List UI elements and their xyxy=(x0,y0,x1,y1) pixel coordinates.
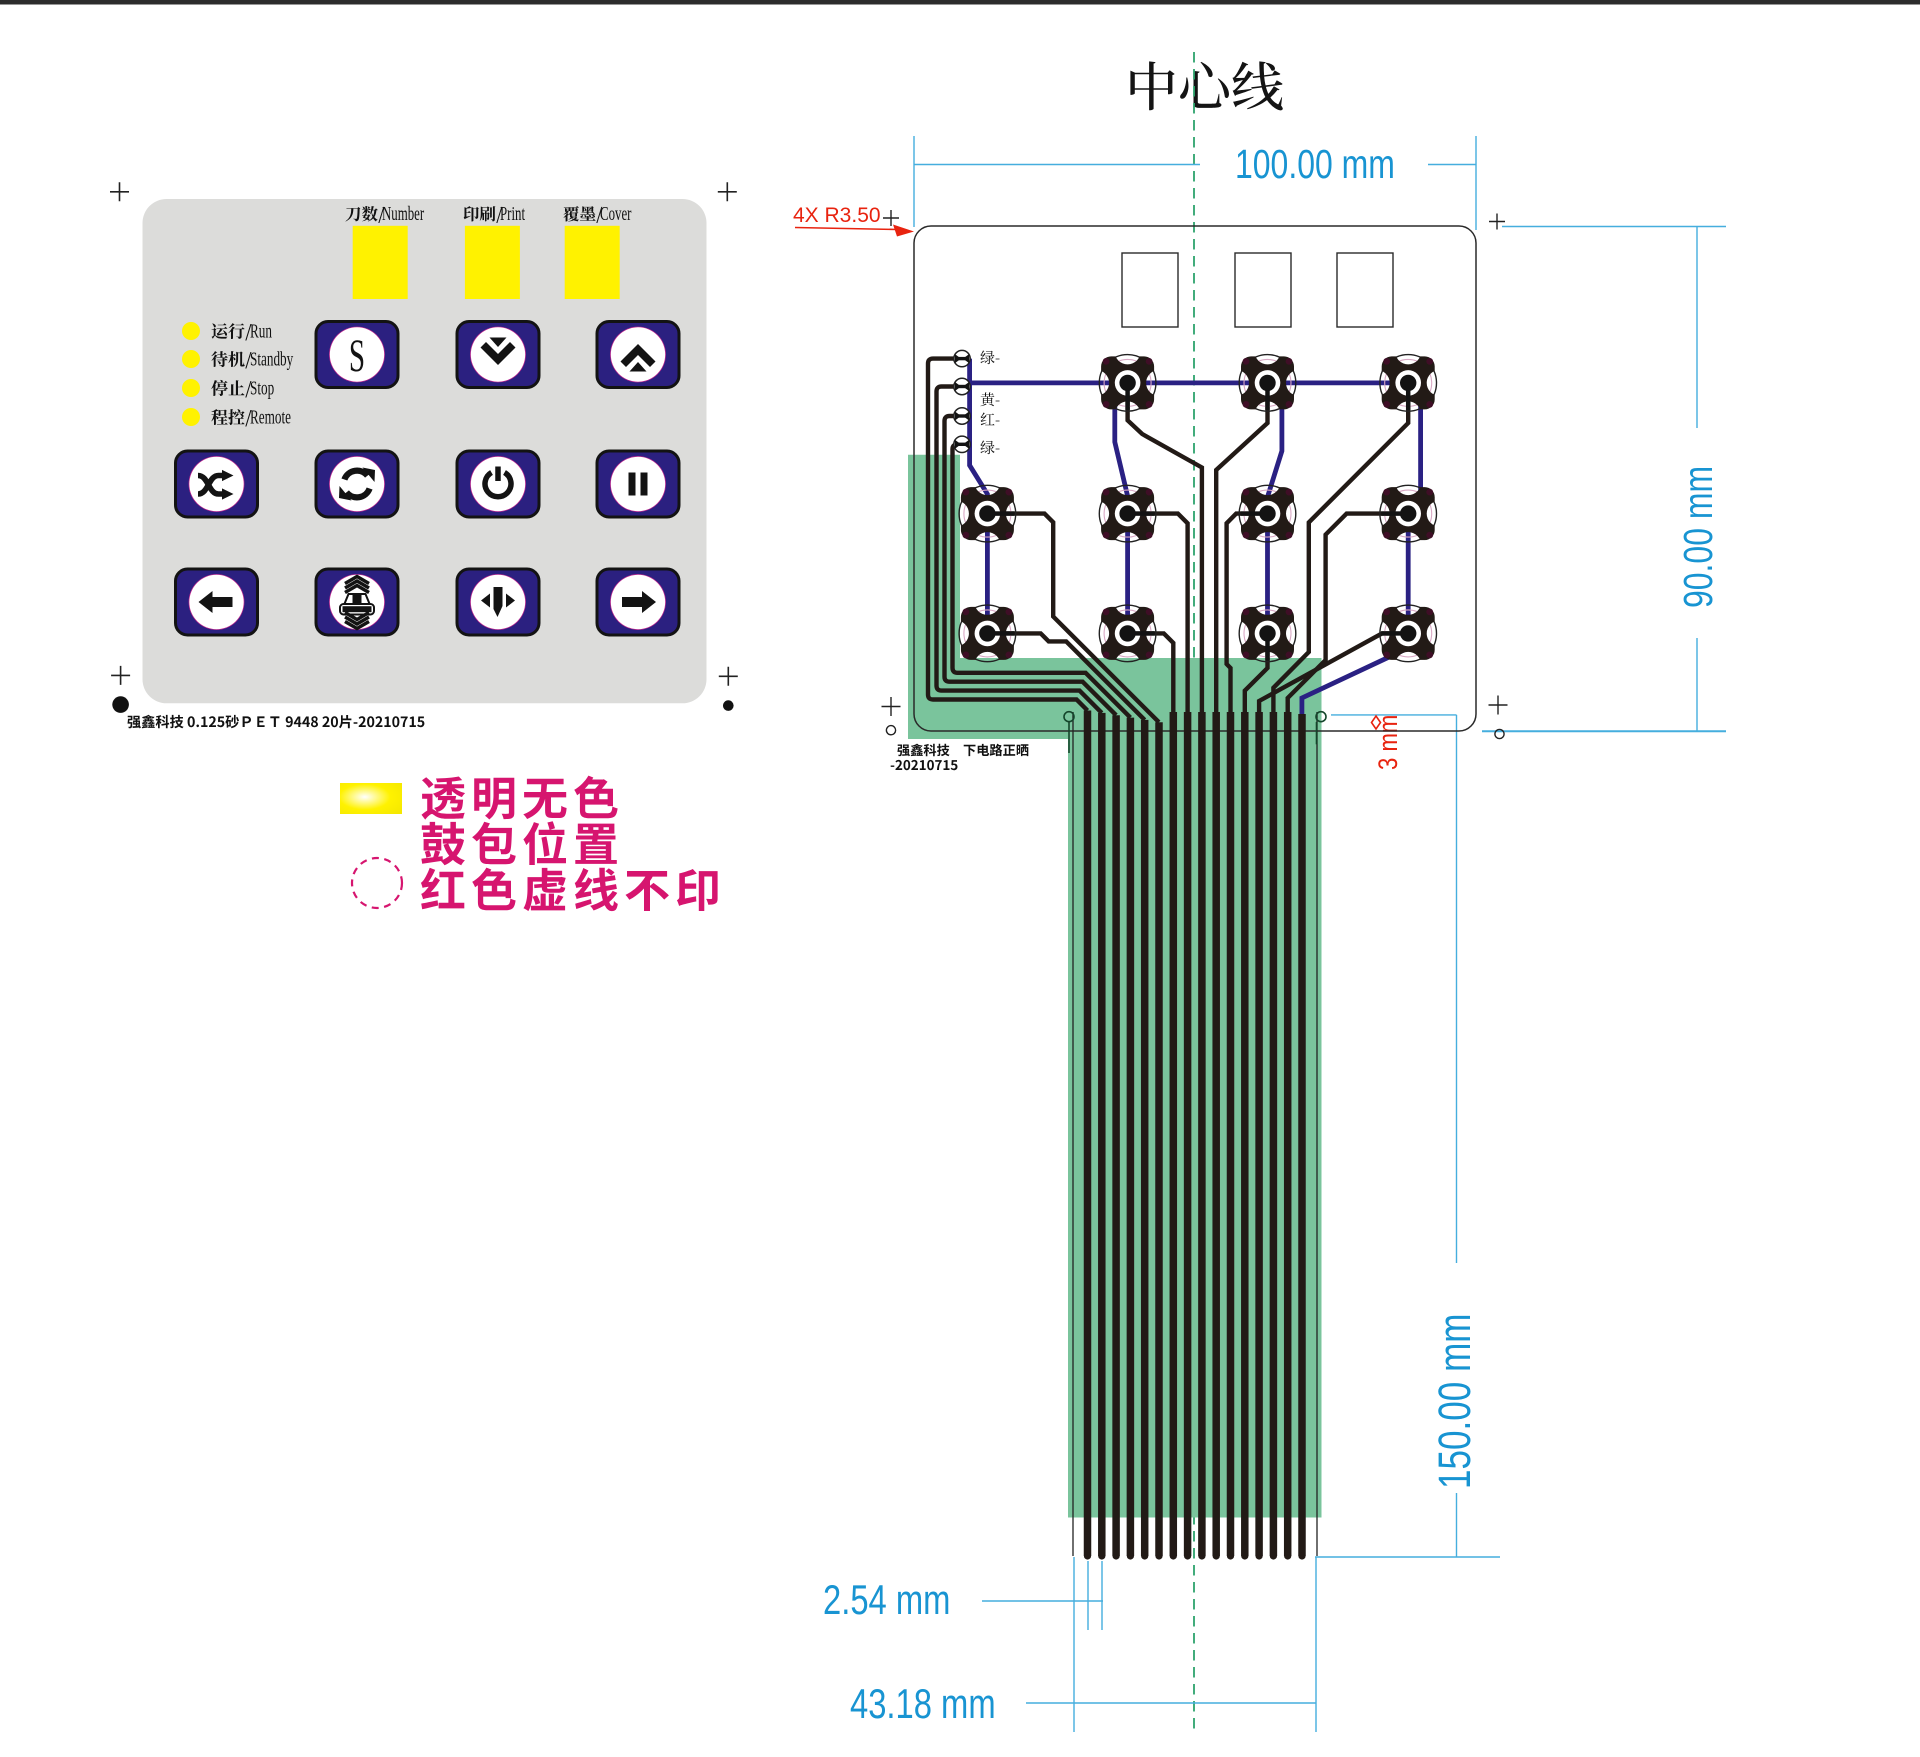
svg-text:Stop: Stop xyxy=(250,377,274,399)
svg-text:Print: Print xyxy=(500,202,525,224)
svg-text:Standby: Standby xyxy=(250,348,294,370)
svg-text:4X R3.50: 4X R3.50 xyxy=(793,204,881,227)
svg-text:150.00 mm: 150.00 mm xyxy=(1429,1313,1480,1489)
svg-text:100.00 mm: 100.00 mm xyxy=(1235,141,1395,187)
svg-text:43.18 mm: 43.18 mm xyxy=(850,1680,996,1727)
svg-text:Run: Run xyxy=(250,320,272,342)
svg-text:S: S xyxy=(349,330,365,382)
svg-text:Cover: Cover xyxy=(600,202,632,224)
svg-text:Remote: Remote xyxy=(250,406,291,428)
svg-text:Number: Number xyxy=(382,202,425,224)
svg-text:90.00 mm: 90.00 mm xyxy=(1675,466,1721,608)
svg-text:2.54 mm: 2.54 mm xyxy=(823,1576,950,1623)
svg-text:3 mm: 3 mm xyxy=(1374,715,1404,770)
